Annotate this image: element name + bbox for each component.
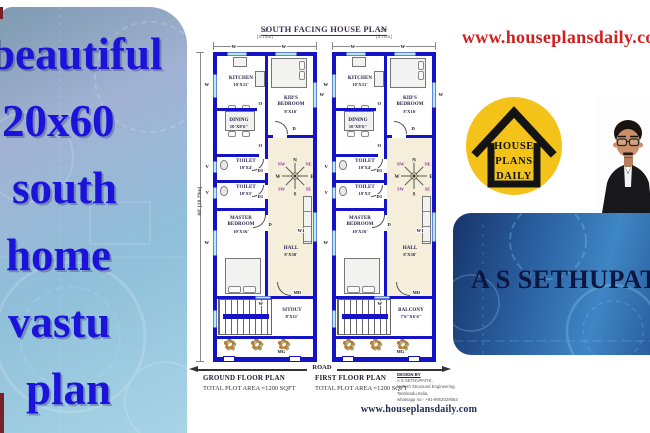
door-gap	[265, 159, 268, 173]
flower-icon: ✿	[223, 337, 236, 352]
hall-sofa	[422, 196, 431, 244]
wall-toilet1	[217, 180, 265, 183]
marker-window: W	[323, 82, 329, 87]
marker-opening: O	[377, 101, 382, 106]
name-banner: A S SETHUPATHI	[453, 213, 650, 355]
marker-main-gate: MG	[277, 349, 286, 354]
window	[213, 230, 217, 256]
window	[227, 52, 247, 56]
dim-width-ft: 20'	[332, 28, 436, 35]
room-label-master: MASTER BEDROOM 10'X16'	[219, 216, 263, 234]
compass-e: E	[310, 175, 314, 180]
road-line	[337, 369, 443, 371]
room-size: 8'X16'	[270, 109, 312, 115]
dining-chair	[361, 131, 369, 137]
headline-line: south	[12, 155, 187, 222]
wall-kitchen-dining	[217, 108, 257, 111]
floor-plan-area: SOUTH FACING HOUSE PLAN 20' [6.10m] 20' …	[187, 0, 460, 433]
road-line	[197, 369, 307, 371]
gate-post	[342, 356, 354, 362]
room-label-kids: KID'S BEDROOM 8'X16'	[270, 96, 312, 114]
room-label-dining: DINING 10'X8'6"	[338, 118, 378, 130]
room-size: 8'X30'	[273, 252, 309, 258]
ground-floor-unit: ✿ ✿ ✿ KITCHEN 10'X11' KID'S BEDROOM 8'X1…	[213, 52, 317, 362]
room-label-kitchen: KITCHEN 10'X11'	[219, 76, 263, 88]
designer-portrait	[598, 95, 650, 213]
room-label-bottom: SITOUT 8'X11'	[271, 308, 313, 320]
headline-line: vastu	[8, 289, 187, 356]
wall-garden-top	[213, 336, 317, 339]
compass-w: W	[395, 175, 400, 180]
window	[332, 230, 336, 256]
portrait-illustration	[598, 95, 650, 213]
window	[313, 82, 317, 108]
master-bed-pillow	[362, 286, 375, 293]
room-size: 7'6"X6'6"	[390, 314, 432, 320]
caption-title: GROUND FLOOR PLAN	[203, 374, 315, 382]
ventilator	[213, 187, 217, 199]
left-panel: beautiful 20x60 south home vastu plan	[0, 7, 187, 433]
hall-sofa	[303, 196, 312, 244]
wall-dining-bottom	[217, 154, 259, 157]
dining-chair	[347, 131, 355, 137]
gate-post	[408, 356, 420, 362]
door-gap	[392, 135, 406, 138]
credits-line: whatsapp no:- +91-9952029063	[397, 397, 459, 403]
marker-main-gate: MG	[396, 349, 405, 354]
marker-main-door: MD	[412, 290, 421, 295]
wall-kitchen-dining	[336, 108, 376, 111]
room-size: 10'X11'	[219, 82, 263, 88]
logo-line: PLANS	[466, 154, 562, 169]
marker-door1: D1	[257, 168, 264, 173]
wall-garden-top	[332, 336, 436, 339]
marker-opening: O	[377, 143, 382, 148]
kitchen-sink	[352, 57, 366, 67]
room-label-bottom: BALCONY 7'6"X6'6"	[390, 308, 432, 320]
footer-website-url: www.houseplansdaily.com	[355, 404, 483, 415]
wall-toilet1	[336, 180, 384, 183]
marker-vent: V	[205, 164, 209, 169]
compass-ne: NE	[424, 162, 430, 167]
room-size: 10'X16'	[219, 229, 263, 235]
marker-window: W	[323, 240, 329, 245]
master-bed-pillow	[228, 286, 241, 293]
marker-window: W	[400, 44, 406, 49]
headline-line: home	[6, 222, 187, 289]
edge-artifact	[0, 393, 4, 433]
window	[332, 74, 336, 98]
dim-height-m: [18.29m]	[197, 186, 203, 207]
marker-window1: W1	[297, 228, 305, 233]
marker-vent: V	[324, 190, 328, 195]
edge-artifact	[0, 7, 3, 19]
dim-line	[332, 46, 436, 47]
room-size: 10'X8'6"	[219, 124, 259, 130]
marker-door1: D1	[257, 194, 264, 199]
compass-nw: NW	[397, 162, 405, 167]
window	[332, 310, 336, 328]
marker-window: W	[377, 301, 383, 306]
dim-tick	[196, 361, 204, 362]
marker-window: W	[204, 82, 210, 87]
door-arc	[394, 121, 407, 134]
room-size: 10'X8'6"	[338, 124, 378, 130]
kids-bed-pillow	[299, 71, 305, 80]
room-label-hall: HALL 8'X30'	[273, 246, 309, 258]
window	[213, 74, 217, 98]
marker-window: W	[438, 92, 444, 97]
room-label-kids: KID'S BEDROOM 8'X16'	[389, 96, 431, 114]
window	[313, 212, 317, 242]
room-label-hall: HALL 8'X30'	[392, 246, 428, 258]
marker-window: W	[204, 240, 210, 245]
window	[346, 52, 366, 56]
ventilator	[213, 161, 217, 173]
stair-landing	[342, 314, 388, 319]
dining-chair	[228, 131, 236, 137]
door-arc	[275, 121, 288, 134]
toilet-wc	[220, 160, 228, 170]
ventilator	[332, 161, 336, 173]
marker-window: W	[231, 44, 237, 49]
kitchen-sink	[233, 57, 247, 67]
marker-window: W	[350, 44, 356, 49]
compass-e: E	[429, 175, 433, 180]
logo-line: HOUSE	[466, 139, 562, 154]
dim-height-ft: 60'	[197, 208, 203, 215]
room-label-master: MASTER BEDROOM 10'X16'	[338, 216, 382, 234]
compass-rose: N S E W NE SE SW NW	[273, 154, 317, 198]
compass-rose: N S E W NE SE SW NW	[392, 154, 436, 198]
thumbnail-canvas: beautiful 20x60 south home vastu plan SO…	[0, 0, 650, 433]
designer-name: A S SETHUPATHI	[471, 265, 650, 295]
dim-tick	[213, 42, 214, 50]
credits-line: M.Tech Structural Engineering,	[397, 384, 459, 390]
flower-icon: ✿	[342, 337, 355, 352]
dim-width-ft: 20'	[213, 28, 317, 35]
gate-post	[223, 356, 235, 362]
toilet-wc	[220, 186, 228, 196]
compass-s: S	[294, 193, 297, 198]
first-floor-unit: ✿ ✿ ✿ KITCHEN 10'X11' KID'S BEDROOM 8'X1…	[332, 52, 436, 362]
logo-line: DAILY	[466, 169, 562, 184]
door-gap	[273, 135, 287, 138]
window	[432, 212, 436, 242]
marker-door1: D1	[376, 168, 383, 173]
marker-main-door: MD	[293, 290, 302, 295]
marker-door1: D1	[376, 194, 383, 199]
door-gap	[384, 159, 387, 173]
caption-ground-floor: GROUND FLOOR PLAN TOTAL PLOT AREA =1200 …	[203, 374, 315, 392]
window	[394, 52, 416, 56]
dimension-top: 20' [6.10m]	[332, 28, 436, 50]
flower-icon: ✿	[250, 337, 263, 352]
room-size: 8'X16'	[389, 109, 431, 115]
headline-line: plan	[26, 356, 187, 423]
dim-tick	[316, 42, 317, 50]
wall-center	[384, 52, 387, 296]
marker-window: W	[281, 44, 287, 49]
compass-s: S	[413, 193, 416, 198]
marker-window1: W1	[416, 228, 424, 233]
compass-nw: NW	[278, 162, 286, 167]
dim-tick	[196, 52, 204, 53]
room-size: 10'X16'	[338, 229, 382, 235]
compass-w: W	[276, 175, 281, 180]
window	[213, 310, 217, 328]
marker-window: W	[319, 92, 325, 97]
compass-ne: NE	[305, 162, 311, 167]
compass-sw: SW	[397, 187, 404, 192]
compass-se: SE	[425, 187, 430, 192]
room-size: 8'X11'	[271, 314, 313, 320]
kids-bed-pillow	[418, 61, 424, 70]
marker-door: D	[387, 222, 391, 227]
caption-area: TOTAL PLOT AREA =1200 SQFT	[203, 385, 315, 392]
wall-toilet2	[336, 208, 384, 211]
website-url: www.houseplansdaily.com	[462, 27, 650, 48]
dimension-top: 20' [6.10m]	[213, 28, 317, 50]
compass-n: N	[412, 159, 416, 164]
headline-line: 20x60	[2, 88, 187, 155]
compass-sw: SW	[278, 187, 285, 192]
toilet-wc	[339, 186, 347, 196]
gate-post	[289, 356, 301, 362]
logo-text: HOUSE PLANS DAILY	[466, 139, 562, 185]
marker-vent: V	[205, 190, 209, 195]
marker-opening: O	[258, 143, 263, 148]
dim-tick	[435, 42, 436, 50]
wall-dining-bottom	[336, 154, 378, 157]
window	[275, 52, 297, 56]
window	[432, 82, 436, 108]
door-gap	[265, 185, 268, 199]
dim-width-m: [6.10m]	[213, 35, 317, 41]
stair-landing	[223, 314, 269, 319]
marker-opening: O	[258, 101, 263, 106]
master-bed-pillow	[347, 286, 360, 293]
kids-bed-pillow	[299, 61, 305, 70]
compass-se: SE	[306, 187, 311, 192]
room-label-dining: DINING 10'X8'6"	[219, 118, 259, 130]
flower-icon: ✿	[369, 337, 382, 352]
toilet-wc	[339, 160, 347, 170]
headline-text: beautiful 20x60 south home vastu plan	[0, 21, 187, 423]
house-plans-daily-logo: HOUSE PLANS DAILY	[466, 97, 562, 195]
dining-chair	[242, 131, 250, 137]
designer-credits: DESIGN BY A S SETHUPATHI, M.Tech Structu…	[397, 372, 459, 403]
wall-toilet2	[217, 208, 265, 211]
compass-n: N	[293, 159, 297, 164]
marker-vent: V	[324, 164, 328, 169]
dim-width-m: [6.10m]	[332, 35, 436, 41]
master-bed-pillow	[243, 286, 256, 293]
wall-center	[265, 52, 268, 296]
door-gap	[384, 185, 387, 199]
marker-door: D	[292, 126, 296, 131]
marker-door: D	[268, 222, 272, 227]
window	[374, 296, 390, 299]
room-size: 10'X11'	[338, 82, 382, 88]
kids-bed-pillow	[418, 71, 424, 80]
dim-line	[213, 46, 317, 47]
window	[255, 296, 271, 299]
ventilator	[332, 187, 336, 199]
dim-tick	[332, 42, 333, 50]
room-label-kitchen: KITCHEN 10'X11'	[338, 76, 382, 88]
marker-window: W	[258, 301, 264, 306]
marker-door: D	[411, 126, 415, 131]
road-label: ROAD	[307, 364, 337, 371]
dim-height-label: 60' [18.29m]	[197, 179, 203, 223]
room-size: 8'X30'	[392, 252, 428, 258]
headline-line: beautiful	[0, 21, 187, 88]
